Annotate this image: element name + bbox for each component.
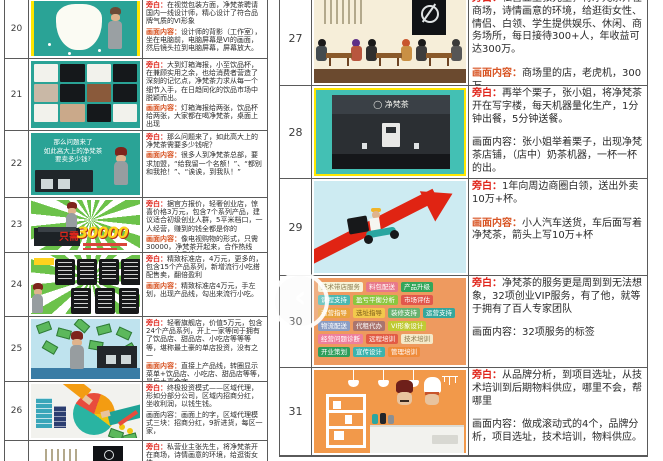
thumbnail-illustration-cafe-top	[31, 443, 140, 461]
table-leg	[379, 58, 381, 66]
mascot-body	[32, 294, 43, 313]
vi-mockup-tile	[60, 84, 84, 102]
menu-board	[55, 259, 75, 285]
price-prefix-text: 只需	[59, 228, 79, 243]
paint-dot	[98, 49, 101, 52]
storyboard-row-31: 31旁白：从品牌分析，到项目选址，从技术培训到后期物料供应，哪里不会，帮哪里画面…	[280, 368, 647, 456]
menu-board	[99, 259, 119, 285]
text-cell: 旁白：私营业主张先生，将净梵茶开在商场，诗情画意的环境，给逛街女性	[143, 441, 267, 461]
narration-paragraph: 旁白：私营业主张先生，将净梵茶开在商场，诗情画意的环境，给逛街女性、情侣、白领、…	[472, 0, 644, 57]
thumbnail-illustration-money-rain	[31, 319, 140, 379]
thumbnail-cell: 那么问题来了如此高大上的净梵茶要卖多少钱?	[29, 131, 143, 197]
narration-paragraph: 旁白：私营业主张先生，将净梵茶开在商场，诗情画意的环境，给逛街女性	[146, 443, 264, 461]
narration-paragraph: 旁白：从品牌分析，到项目选址，从技术培训到后期物料供应，哪里不会，帮哪里	[472, 370, 644, 408]
narration-paragraph: 旁白：在视觉包装方面，净梵茶聘请国内一线设计师，精心设计了符合品牌气质的VI形象	[146, 1, 264, 26]
table-leg	[329, 58, 331, 66]
vi-mockup-tile	[34, 84, 58, 102]
thumbnail-cell	[312, 0, 469, 85]
narration-paragraph: 旁白：终极投资模式——区域代理，形如分部分公司，区域内招商分红，坐收利润，以钱生…	[146, 384, 264, 409]
service-tag: 料包配送	[366, 282, 398, 292]
service-tag: 装修支持	[388, 308, 420, 318]
menu-board	[77, 259, 97, 285]
row-number: 22	[5, 131, 29, 197]
scene-paragraph: 画面内容：画面上的字，区域代理模式三块：招商分红，9折进货，每区一家，	[146, 411, 264, 436]
narration-paragraph: 旁白：净梵茶的服务更是周到到无法想象，32项创业VIP服务，有了他，就等于拥有了…	[472, 278, 644, 316]
menu-text-column	[63, 449, 65, 461]
narration-label: 旁白：	[472, 181, 502, 192]
teashop-sign: ◯ 净梵茶	[332, 95, 450, 114]
cup	[414, 143, 419, 149]
scene-paragraph: 画面内容：商场里的店，老虎机，300万。	[472, 68, 644, 85]
storyboard-row-23: 23只需30000旁白：据官方报价，轻奢创业店，惊喜价格3万元，包含7个系列产品…	[5, 198, 267, 253]
scene-label: 画面内容：	[146, 362, 181, 370]
bottle	[380, 413, 386, 424]
service-tag: 选址指导	[353, 308, 385, 318]
row-number	[5, 441, 29, 461]
scene-label: 画面内容：	[472, 218, 522, 229]
scene-label: 画面内容：	[472, 137, 522, 148]
narration-paragraph: 旁白：再举个栗子，张小姐，将净梵茶开在写字楼，每天机器量化生产，1分钟出餐，5分…	[472, 88, 644, 126]
utensil-hook	[455, 377, 456, 383]
vi-mockup-tile	[87, 84, 111, 102]
vi-mockup-tile	[34, 104, 58, 122]
text-cell: 旁白：在视觉包装方面，净梵茶聘请国内一线设计师，精心设计了符合品牌气质的VI形象…	[143, 0, 267, 58]
narration-paragraph: 旁白：那么问题来了，如此高大上的净梵茶需要多少钱呢？	[146, 133, 264, 149]
menu-board-lines	[58, 262, 72, 282]
menu-text-column	[330, 0, 332, 24]
painter-body	[108, 21, 122, 49]
shelf-board	[329, 426, 363, 429]
thumbnail-illustration-vi-grid	[31, 61, 140, 128]
lamp-cord	[353, 370, 354, 380]
text-cell: 旁白：从品牌分析，到项目选址，从技术培训到后期物料供应，哪里不会，帮哪里画面内容…	[469, 368, 647, 455]
row-number: 21	[5, 59, 29, 130]
kitchen-counter	[370, 425, 464, 453]
table-leg	[429, 58, 431, 66]
storyboard-row-27: 27旁白：私营业主张先生，将净梵茶开在商场，诗情画意的环境，给逛街女性、情侣、白…	[280, 0, 647, 86]
utensil-hook	[444, 377, 445, 382]
bottle	[388, 415, 394, 424]
logo-poster	[93, 446, 123, 461]
storefront-window	[41, 179, 53, 189]
storyboard-row-24: 24旁白：精致标准店，4万元，更多的，包含15个产品系列，新增流行小吃搭配售卖，…	[5, 253, 267, 317]
narration-label: 旁白：	[146, 200, 167, 208]
service-tag-cloud: 技术带店服务料包配送产品升级课程支持盈亏平衡分析市场评估运营指导选址指导装修支持…	[318, 282, 462, 361]
service-tag: 管理培训	[388, 347, 420, 357]
narration-label: 旁白：	[146, 319, 167, 327]
thumbnail-illustration-service-tags: 技术带店服务料包配送产品升级课程支持盈亏平衡分析市场评估运营指导选址指导装修支持…	[314, 278, 466, 365]
menu-text-column	[336, 0, 338, 24]
chef-face	[425, 394, 439, 405]
chef-hat	[424, 377, 441, 393]
thumbnail-illustration-cafe	[314, 0, 466, 83]
row-number: 29	[280, 179, 312, 275]
service-tag: 技术培训	[401, 334, 433, 344]
thumbnail-cell: 只需30000	[29, 198, 143, 252]
teashop-storefront: ◯ 净梵茶	[332, 95, 450, 169]
scene-label: 画面内容：	[472, 419, 522, 430]
row-number: 23	[5, 198, 29, 252]
scooter-wheel	[364, 235, 373, 244]
narration-label: 旁白：	[472, 278, 502, 289]
scene-paragraph: 画面内容：小人汽车送货，车后面写着净梵茶，箭头上写10万+杯	[472, 218, 644, 244]
narration-label: 旁白：	[472, 370, 502, 381]
painted-cup-shape	[56, 4, 102, 50]
vi-mockup-tile	[113, 64, 137, 82]
service-tag: 开业策划	[318, 347, 350, 357]
menu-text-column	[51, 449, 53, 461]
service-tag: VI形象设计	[388, 321, 426, 331]
caption-line	[83, 243, 127, 246]
service-tag: 市场评估	[401, 295, 433, 305]
thumbnail-cell	[29, 317, 143, 381]
storefront-window	[121, 355, 131, 364]
thumbnail-illustration-paint-cup	[31, 1, 140, 56]
thumbnail-cell	[312, 179, 469, 275]
storefront-window	[106, 355, 116, 364]
paint-dot	[68, 52, 71, 55]
menu-board-lines	[124, 262, 138, 282]
thumbnail-illustration-kitchen	[314, 370, 466, 453]
wall-menu	[324, 0, 362, 24]
text-cell: 旁白：终极投资模式——区域代理，形如分部分公司，区域内招商分红，坐收利润，以钱生…	[143, 382, 267, 440]
tea-machine-slot	[386, 127, 396, 133]
caption-line	[83, 248, 117, 250]
row-number: 25	[5, 317, 29, 381]
menu-text-column	[45, 449, 47, 461]
shelf-jar	[345, 415, 352, 424]
thumbnail-illustration-menu-boards	[31, 255, 140, 314]
storyboard-row-20: 20旁白：在视觉包装方面，净梵茶聘请国内一线设计师，精心设计了符合品牌气质的VI…	[5, 0, 267, 59]
storyboard-row-28: 28◯ 净梵茶旁白：再举个栗子，张小姐，将净梵茶开在写字楼，每天机器量化生产，1…	[280, 86, 647, 179]
mustache	[400, 400, 409, 402]
scene-label: 画面内容：	[146, 151, 181, 159]
menu-board-lines	[122, 291, 136, 311]
service-tag: 运营支持	[423, 308, 455, 318]
vi-mockup-tile	[113, 104, 137, 122]
collapse-chevron-button[interactable]: ‹	[271, 272, 329, 330]
coin	[127, 428, 133, 434]
thumbnail-cell: ◯ 净梵茶	[312, 86, 469, 178]
scene-paragraph: 画面内容：像电视购物的形式，只需30000，净梵茶开起来，合作热线******，…	[146, 235, 264, 252]
wall-menu	[45, 449, 77, 461]
narration-paragraph: 旁白：轻奢旗舰店，价值5万元，包含24个产品系列，开上一家等同于拥有了饮品店、甜…	[146, 319, 264, 360]
narration-text: 私营业主张先生，将净梵茶开在商场，诗情画意的环境，给逛街女性、情侣、白领、学生提…	[472, 0, 642, 55]
menu-board	[95, 288, 115, 314]
scene-label: 画面内容：	[146, 411, 181, 419]
thumbnail-illustration-delivery-arrow	[314, 181, 466, 273]
utensil-hook	[449, 377, 450, 385]
service-tag: 盈亏平衡分析	[353, 295, 398, 305]
menu-text-column	[354, 0, 356, 24]
shelf-jar	[333, 401, 341, 409]
thumbnail-cell	[29, 382, 143, 440]
storyboard-table-left-page: 20旁白：在视觉包装方面，净梵茶聘请国内一线设计师，精心设计了符合品牌气质的VI…	[4, 0, 268, 461]
shelf-board	[329, 410, 363, 413]
narration-paragraph: 旁白：精致标准店，4万元，更多的，包含15个产品系列，新增流行小吃搭配售卖，翻倍…	[146, 255, 264, 280]
scene-paragraph: 画面内容：32项服务的标签	[472, 327, 644, 340]
table-leg	[447, 58, 449, 66]
narration-label: 旁白：	[146, 133, 167, 141]
thumbnail-illustration-question: 那么问题来了如此高大上的净梵茶要卖多少钱?	[31, 133, 140, 195]
menu-text-column	[57, 449, 59, 461]
vi-mockup-tile	[87, 64, 111, 82]
counter-button-panel	[432, 435, 458, 444]
row-number: 26	[5, 382, 29, 440]
storefront-window	[58, 179, 70, 189]
money-bill	[96, 323, 112, 335]
price-amount-text: 30000	[77, 223, 128, 242]
vi-mockup-tile	[60, 104, 84, 122]
menu-board	[119, 288, 139, 314]
fez-man-face	[397, 392, 412, 405]
scene-paragraph: 画面内容：直接上产品线，转圈显示菜单+饮品店、小吃店、甜品店等等，最后土豪金字	[146, 362, 264, 381]
vi-mockup-grid	[34, 64, 137, 125]
menu-board-lines	[102, 262, 116, 282]
storyboard-document-canvas: 20旁白：在视觉包装方面，净梵茶聘请国内一线设计师，精心设计了符合品牌气质的VI…	[0, 0, 663, 461]
mascot-body	[114, 161, 128, 185]
storyboard-row-29: 29旁白：1年向周边商圈白领，送出外卖10万+杯。画面内容：小人汽车送货，车后面…	[280, 179, 647, 276]
service-tag: 远程培训	[366, 334, 398, 344]
thumbnail-cell	[29, 59, 143, 130]
menu-board-lines	[74, 291, 88, 311]
narration-label: 旁白：	[146, 255, 167, 263]
menu-board-lines	[80, 262, 94, 282]
money-bill	[36, 321, 52, 334]
cafe-floor	[314, 69, 466, 83]
scene-label: 画面内容：	[146, 104, 181, 112]
row-number: 28	[280, 86, 312, 178]
building	[36, 398, 52, 428]
shelf-jar	[334, 431, 344, 440]
chevron-left-icon: ‹	[294, 283, 306, 313]
scene-paragraph: 画面内容：精致标准店4万元，手左划，出现产品线，勾出来流行小吃。	[146, 282, 264, 298]
scene-paragraph: 画面内容：张小姐举着栗子，出现净梵茶店铺，（店中）奶茶机器，一杯一杯的出。	[472, 137, 644, 175]
menu-text-column	[348, 0, 350, 24]
row-number: 24	[5, 253, 29, 316]
narration-paragraph: 旁白：据官方报价，轻奢创业店，惊喜价格3万元，包含7个系列产品，建议适合初级创业…	[146, 200, 264, 233]
thumbnail-cell	[29, 0, 143, 58]
scene-paragraph: 画面内容：很多人到净梵茶总部，要求加盟，“给我留一个名额！”、“都别和我抢！”、…	[146, 151, 264, 176]
scene-text: 32项服务的标签	[522, 327, 595, 338]
shop-counter	[332, 154, 450, 169]
menu-board	[121, 259, 140, 285]
storyboard-table-right-page: 27旁白：私营业主张先生，将净梵茶开在商场，诗情画意的环境，给逛街女性、情侣、白…	[279, 0, 648, 457]
storyboard-row-30: 30技术带店服务料包配送产品升级课程支持盈亏平衡分析市场评估运营指导选址指导装修…	[280, 276, 647, 368]
text-cell: 旁白：据官方报价，轻奢创业店，惊喜价格3万元，包含7个系列产品，建议适合初级创业…	[143, 198, 267, 252]
thumbnail-cell: 技术带店服务料包配送产品升级课程支持盈亏平衡分析市场评估运营指导选址指导装修支持…	[312, 276, 469, 367]
kitchen-shelf	[326, 394, 366, 448]
narration-paragraph: 旁白：大到灯箱海报，小至饮品杯，在兼顾实用之余，也给消费者营造了深刻的记忆点，净…	[146, 61, 264, 102]
red-arrow-head	[420, 181, 460, 222]
vi-mockup-tile	[113, 84, 137, 102]
storefront	[97, 346, 137, 368]
paint-dot	[48, 43, 51, 46]
row-number: 20	[5, 0, 29, 58]
scene-paragraph: 画面内容：灯箱海报给两张，饮品杯给两张，大家都在喝净梵茶，桌面上出现	[146, 104, 264, 129]
storyboard-row-21: 21旁白：大到灯箱海报，小至饮品杯，在兼顾实用之余，也给消费者营造了深刻的记忆点…	[5, 59, 267, 131]
menu-text-column	[324, 0, 326, 24]
customer-body	[351, 46, 362, 61]
menu-text-column	[342, 0, 344, 24]
scene-paragraph: 画面内容：设计师的背影（工作室），坐在电脑前，电脑屏幕是VI的画面，然后镜头拉到…	[146, 28, 264, 53]
lamp-shade	[378, 380, 389, 387]
scene-label: 画面内容：	[146, 235, 181, 243]
narration-label: 旁白：	[146, 1, 167, 9]
customer-body	[451, 46, 462, 61]
narration-label: 旁白：	[146, 443, 167, 451]
storyboard-row-25: 25旁白：轻奢旗舰店，价值5万元，包含24个产品系列，开上一家等同于拥有了饮品店…	[5, 317, 267, 382]
customer-body	[401, 46, 412, 61]
narration-label: 旁白：	[146, 61, 167, 69]
bottle	[372, 414, 378, 424]
thumbnail-cell	[29, 253, 143, 316]
poster-logo-ring	[104, 450, 114, 460]
text-cell: 旁白：私营业主张先生，将净梵茶开在商场，诗情画意的环境，给逛街女性、情侣、白领、…	[469, 0, 647, 85]
text-cell: 旁白：轻奢旗舰店，价值5万元，包含24个产品系列，开上一家等同于拥有了饮品店、甜…	[143, 317, 267, 381]
narration-label: 旁白：	[146, 384, 167, 392]
lamp-cord	[413, 370, 414, 380]
storyboard-row-partial: 旁白：私营业主张先生，将净梵茶开在商场，诗情画意的环境，给逛街女性	[5, 441, 267, 461]
service-tag: 经营问题诊断	[318, 334, 363, 344]
text-cell: 旁白：净梵茶的服务更是周到到无法想象，32项创业VIP服务，有了他，就等于拥有了…	[469, 276, 647, 367]
thumbnail-illustration-pie-hands	[31, 384, 140, 438]
menu-board	[71, 288, 91, 314]
money-bill	[116, 326, 132, 340]
scene-label: 画面内容：	[146, 282, 181, 290]
money-bill	[42, 340, 59, 355]
menu-board-lines	[98, 291, 112, 311]
thumbnail-illustration-only-30000: 只需30000	[31, 200, 140, 250]
service-tag: 宣传设计	[353, 347, 385, 357]
service-tag: 产品升级	[401, 282, 433, 292]
menu-text-column	[75, 449, 77, 461]
text-cell: 旁白：1年向周边商圈白领，送出外卖10万+杯。画面内容：小人汽车送货，车后面写着…	[469, 179, 647, 275]
scene-label: 画面内容：	[472, 68, 522, 79]
lamp-shade	[348, 380, 359, 387]
table-leg	[347, 58, 349, 66]
scooter-wheel	[390, 230, 399, 239]
vi-mockup-tile	[60, 64, 84, 82]
menu-text-column	[69, 449, 71, 461]
text-cell: 旁白：大到灯箱海报，小至饮品杯，在兼顾实用之余，也给消费者营造了深刻的记忆点，净…	[143, 59, 267, 130]
question-text: 那么问题来了如此高大上的净梵茶要卖多少钱?	[35, 138, 111, 164]
text-cell: 旁白：再举个栗子，张小姐，将净梵茶开在写字楼，每天机器量化生产，1分钟出餐，5分…	[469, 86, 647, 178]
row-number: 31	[280, 368, 312, 455]
money-bill	[56, 327, 72, 339]
storyboard-row-22: 22那么问题来了如此高大上的净梵茶要卖多少钱?旁白：那么问题来了，如此高大上的净…	[5, 131, 267, 198]
water-floor	[31, 368, 140, 379]
storyboard-row-26: 26旁白：终极投资模式——区域代理，形如分部分公司，区域内招商分红，坐收利润，以…	[5, 382, 267, 441]
table-leg	[397, 58, 399, 66]
narration-label: 旁白：	[472, 0, 502, 4]
scene-paragraph: 画面内容：做成滚动式的4个，品牌分析，项目选址，技术培训，物料供应。	[472, 419, 644, 445]
mascot-body	[70, 345, 84, 369]
thumbnail-illustration-shop-sign: ◯ 净梵茶	[314, 88, 466, 176]
thumbnail-cell	[29, 441, 143, 461]
row-number: 27	[280, 0, 312, 85]
scene-label: 画面内容：	[472, 327, 522, 338]
menu-text-column	[360, 0, 362, 24]
lamp-cord	[383, 370, 384, 380]
narration-paragraph: 旁白：1年向周边商圈白领，送出外卖10万+杯。	[472, 181, 644, 207]
painter-face	[111, 14, 120, 21]
text-cell: 旁白：精致标准店，4万元，更多的，包含15个产品系列，新增流行小吃搭配售卖，翻倍…	[143, 253, 267, 316]
thumbnail-cell	[312, 368, 469, 455]
building	[54, 406, 66, 428]
price-tag	[34, 258, 54, 265]
service-tag: 物流配送	[318, 321, 350, 331]
vi-mockup-tile	[34, 64, 58, 82]
logo-poster	[412, 0, 446, 35]
service-tag: 代租代办	[353, 321, 385, 331]
scene-label: 画面内容：	[146, 28, 181, 36]
vi-mockup-tile	[87, 104, 111, 122]
narration-label: 旁白：	[472, 88, 502, 99]
text-cell: 旁白：那么问题来了，如此高大上的净梵茶需要多少钱呢？画面内容：很多人到净梵茶总部…	[143, 131, 267, 197]
cup	[362, 143, 367, 149]
